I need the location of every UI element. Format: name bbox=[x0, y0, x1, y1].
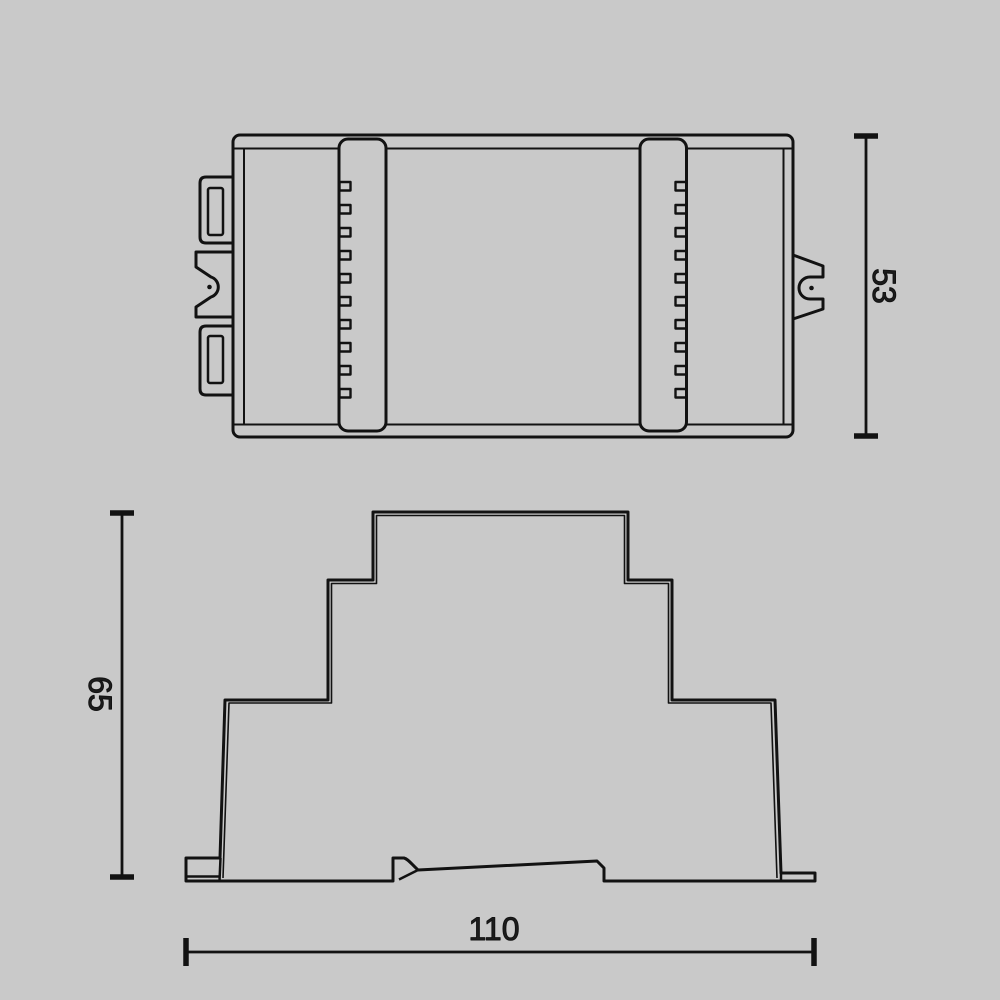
dimension-110: 110 bbox=[186, 911, 814, 966]
mounting-slot-bottom bbox=[208, 336, 223, 383]
dimension-53-label: 53 bbox=[866, 268, 902, 304]
mounting-slot-top bbox=[208, 188, 223, 235]
profile-outline bbox=[186, 512, 815, 881]
dimension-65: 65 bbox=[82, 513, 134, 877]
mounting-ear-right bbox=[793, 255, 823, 319]
drawing-page: 53 65 110 bbox=[0, 0, 1000, 1000]
din-clip-left bbox=[196, 252, 233, 317]
rail-clip-edge bbox=[399, 870, 418, 880]
profile-view bbox=[186, 512, 815, 881]
technical-drawing: 53 65 110 bbox=[0, 0, 1000, 1000]
ear-hole-right bbox=[809, 286, 814, 291]
top-view bbox=[196, 135, 823, 437]
dimension-53: 53 bbox=[854, 136, 902, 436]
housing-outline bbox=[233, 135, 793, 437]
clip-hole-left bbox=[207, 285, 212, 290]
dimension-65-label: 65 bbox=[82, 676, 118, 712]
dimension-110-label: 110 bbox=[468, 911, 519, 947]
profile-inner-wall bbox=[223, 516, 777, 879]
